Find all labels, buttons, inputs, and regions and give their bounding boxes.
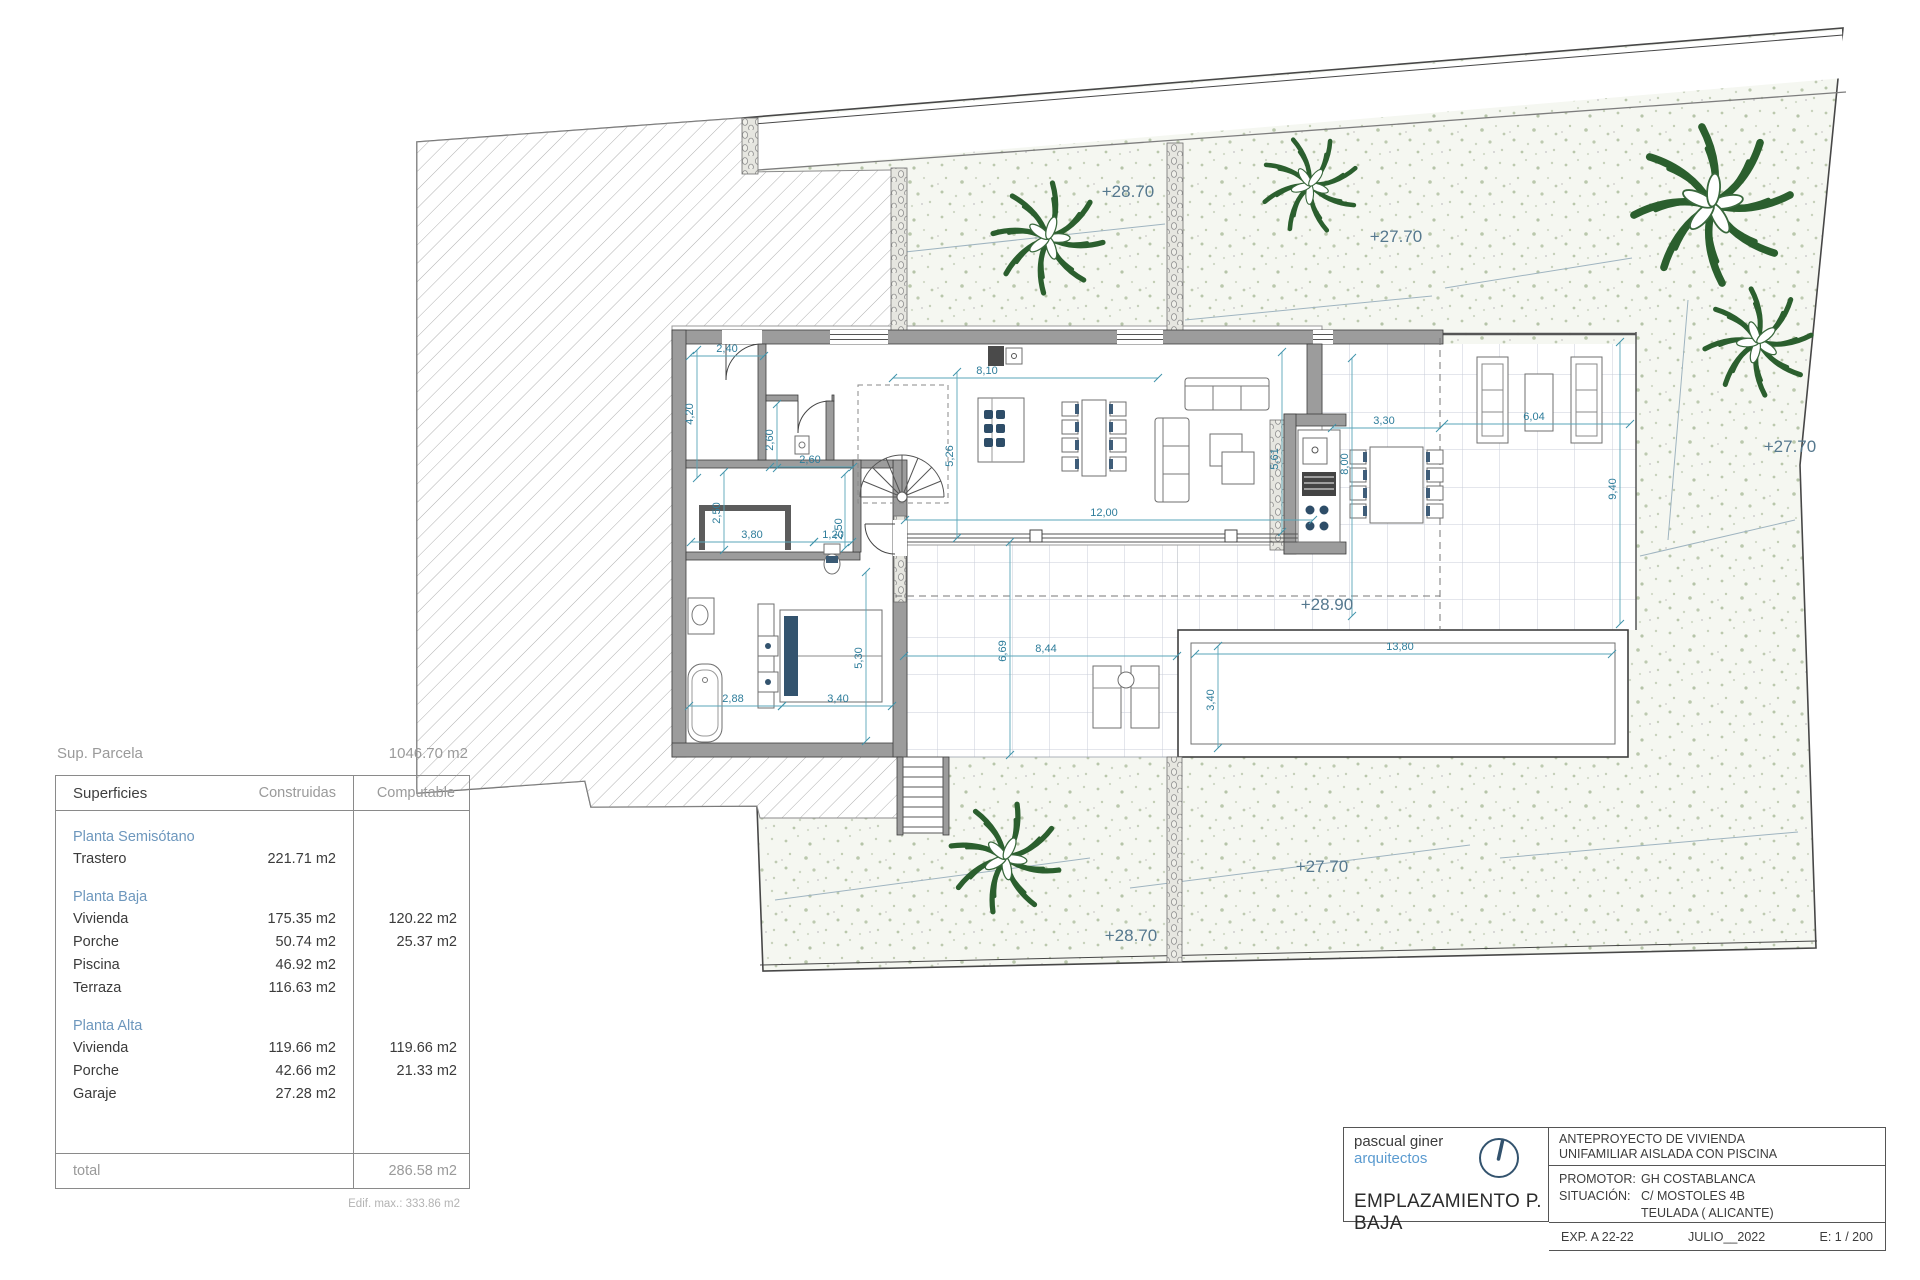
situation-value-1: C/ MOSTOLES 4B: [1641, 1189, 1745, 1203]
title-block-right: ANTEPROYECTO DE VIVIENDA UNIFAMILIAR AIS…: [1549, 1127, 1886, 1251]
elevation-label: +28.90: [1301, 595, 1353, 614]
col-computable: Computable: [352, 785, 469, 801]
parcel-area-row: Sup. Parcela 1046.70 m2: [55, 745, 470, 762]
table-cell: 21.33 m2: [352, 1060, 469, 1083]
dimension-label: 5,26: [944, 445, 956, 466]
dimension-label: 8,00: [1339, 453, 1351, 474]
table-cell: 120.22 m2: [352, 908, 469, 931]
table-cell: [352, 977, 469, 1000]
table-cell: 25.37 m2: [352, 931, 469, 954]
sheet-meta-row: EXP. A 22-22 JULIO__2022 E: 1 / 200: [1549, 1223, 1886, 1251]
table-total-row: total 286.58 m2: [56, 1153, 469, 1188]
parcel-label: Sup. Parcela: [57, 745, 143, 762]
table-cell: Porche: [56, 1060, 256, 1083]
north-arrow-icon: [1476, 1135, 1522, 1181]
table-cell: 175.35 m2: [256, 908, 352, 931]
dimension-label: 5,61: [1269, 448, 1281, 469]
table-cell: Vivienda: [56, 908, 256, 931]
table-cell: Vivienda: [56, 1037, 256, 1060]
table-cell: 46.92 m2: [256, 954, 352, 977]
table-cell: [352, 848, 469, 871]
elevation-label: +28.70: [1102, 182, 1154, 201]
table-row: Trastero221.71 m2: [56, 848, 469, 871]
sheet-scale: E: 1 / 200: [1819, 1230, 1873, 1244]
promoter-label: PROMOTOR:: [1559, 1171, 1641, 1188]
dimension-label: 2,60: [764, 429, 776, 450]
surface-table-body: Planta SemisótanoTrastero221.71 m2Planta…: [56, 826, 469, 1106]
dimension-label: 3,30: [1373, 415, 1394, 427]
dimension-label: 2,50: [833, 518, 845, 539]
firm-name: pascual giner: [1354, 1133, 1443, 1150]
table-row: Vivienda119.66 m2119.66 m2: [56, 1037, 469, 1060]
title-block-left: pascual giner arquitectos EMPLAZAMIENTO …: [1343, 1127, 1549, 1222]
dimension-label: 6,69: [997, 640, 1009, 661]
table-section-header: Planta Semisótano: [56, 826, 469, 848]
table-cell: [352, 954, 469, 977]
table-row: Garaje27.28 m2: [56, 1083, 469, 1106]
sheet-title: EMPLAZAMIENTO P. BAJA: [1354, 1191, 1548, 1235]
firm-identity: pascual giner arquitectos: [1354, 1133, 1443, 1167]
table-cell: 116.63 m2: [256, 977, 352, 1000]
project-info: PROMOTOR:GH COSTABLANCA SITUACIÓN:C/ MOS…: [1549, 1166, 1886, 1223]
dimension-label: 13,80: [1386, 641, 1414, 653]
col-superficies: Superficies: [56, 785, 256, 802]
expediente: EXP. A 22-22: [1561, 1230, 1634, 1244]
col-construidas: Construidas: [256, 785, 352, 801]
total-value: 286.58 m2: [352, 1163, 469, 1179]
table-cell: 42.66 m2: [256, 1060, 352, 1083]
table-cell: [352, 1083, 469, 1106]
table-cell: Garaje: [56, 1083, 256, 1106]
elevation-label: +27.70: [1764, 437, 1816, 456]
total-label: total: [56, 1163, 256, 1179]
surface-summary-panel: Sup. Parcela 1046.70 m2 Superficies Cons…: [55, 745, 470, 1210]
dimension-label: 4,20: [684, 403, 696, 424]
dimension-label: 2,88: [722, 693, 743, 705]
dimension-label: 2,40: [716, 343, 737, 355]
table-cell: 27.28 m2: [256, 1083, 352, 1106]
dimension-label: 5,30: [853, 647, 865, 668]
elevation-label: +27.70: [1296, 857, 1348, 876]
dimension-label: 9,40: [1607, 478, 1619, 499]
table-cell: Trastero: [56, 848, 256, 871]
table-cell: 221.71 m2: [256, 848, 352, 871]
firm-subtitle: arquitectos: [1354, 1150, 1427, 1167]
table-cell: 119.66 m2: [256, 1037, 352, 1060]
surface-table: Superficies Construidas Computable Plant…: [55, 775, 470, 1189]
dimension-label: 2,60: [799, 454, 820, 466]
table-row: Vivienda175.35 m2120.22 m2: [56, 908, 469, 931]
table-section-header: Planta Alta: [56, 1015, 469, 1037]
table-cell: Porche: [56, 931, 256, 954]
dimension-label: 8,10: [976, 365, 997, 377]
dimension-label: 6,04: [1523, 411, 1544, 423]
table-cell: Piscina: [56, 954, 256, 977]
table-row: Porche50.74 m225.37 m2: [56, 931, 469, 954]
exterior-stair: [903, 757, 943, 833]
max-edificability-note: Edif. max.: 333.86 m2: [55, 1198, 470, 1210]
table-column-divider: [353, 776, 354, 1188]
dimension-label: 8,44: [1035, 643, 1056, 655]
table-row: Porche42.66 m221.33 m2: [56, 1060, 469, 1083]
table-cell: 119.66 m2: [352, 1037, 469, 1060]
elevation-label: +27.70: [1370, 227, 1422, 246]
table-section-header: Planta Baja: [56, 886, 469, 908]
parcel-value: 1046.70 m2: [389, 745, 468, 762]
sheet-date: JULIO__2022: [1688, 1230, 1765, 1244]
dimension-label: 2,50: [711, 502, 723, 523]
table-row: Terraza116.63 m2: [56, 977, 469, 1000]
table-cell: Terraza: [56, 977, 256, 1000]
promoter-value: GH COSTABLANCA: [1641, 1172, 1755, 1186]
dimension-label: 3,40: [827, 693, 848, 705]
project-title: ANTEPROYECTO DE VIVIENDA UNIFAMILIAR AIS…: [1549, 1127, 1886, 1166]
situation-value-2: TEULADA ( ALICANTE): [1641, 1206, 1774, 1220]
table-header: Superficies Construidas Computable: [56, 776, 469, 811]
dimension-label: 12,00: [1090, 507, 1118, 519]
dimension-label: 3,80: [741, 529, 762, 541]
table-cell: 50.74 m2: [256, 931, 352, 954]
dimension-label: 3,40: [1205, 689, 1217, 710]
table-row: Piscina46.92 m2: [56, 954, 469, 977]
situation-label: SITUACIÓN:: [1559, 1188, 1641, 1205]
elevation-label: +28.70: [1105, 926, 1157, 945]
drawing-sheet: 2,404,202,602,605,268,1012,005,618,003,3…: [0, 0, 1920, 1280]
